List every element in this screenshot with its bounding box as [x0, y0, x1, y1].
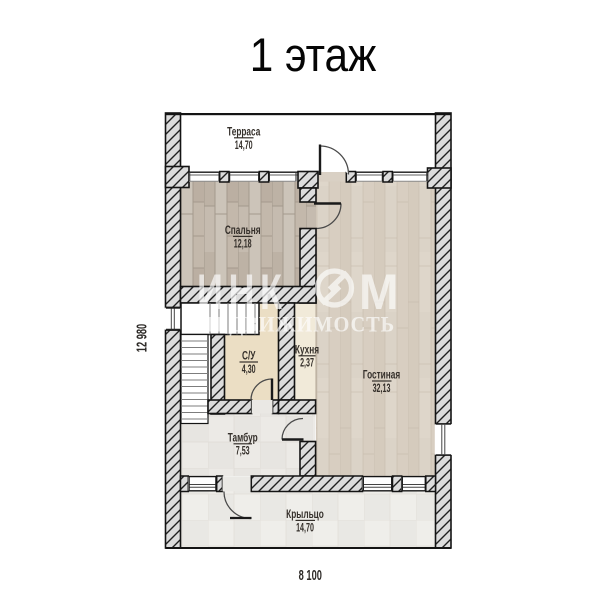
svg-text:12 980: 12 980	[133, 324, 150, 352]
svg-text:2,37: 2,37	[300, 357, 314, 370]
svg-text:С/У: С/У	[242, 350, 256, 363]
svg-text:1 этаж: 1 этаж	[250, 30, 377, 82]
svg-text:32,13: 32,13	[373, 382, 391, 395]
svg-text:Терраса: Терраса	[227, 126, 261, 139]
svg-text:7,53: 7,53	[236, 445, 250, 458]
svg-text:8 100: 8 100	[299, 567, 322, 584]
svg-text:14,70: 14,70	[235, 139, 253, 152]
svg-text:4,30: 4,30	[242, 363, 256, 376]
svg-text:Гостиная: Гостиная	[363, 369, 401, 382]
svg-text:Кухня: Кухня	[295, 344, 319, 357]
svg-text:14,70: 14,70	[296, 522, 314, 535]
svg-text:Спальня: Спальня	[225, 225, 261, 238]
svg-text:Тамбур: Тамбур	[228, 431, 258, 445]
svg-text:Крыльцо: Крыльцо	[286, 509, 324, 522]
svg-text:12,18: 12,18	[234, 238, 252, 251]
svg-text:НЕДВИЖИМОСТЬ: НЕДВИЖИМОСТЬ	[198, 312, 395, 337]
